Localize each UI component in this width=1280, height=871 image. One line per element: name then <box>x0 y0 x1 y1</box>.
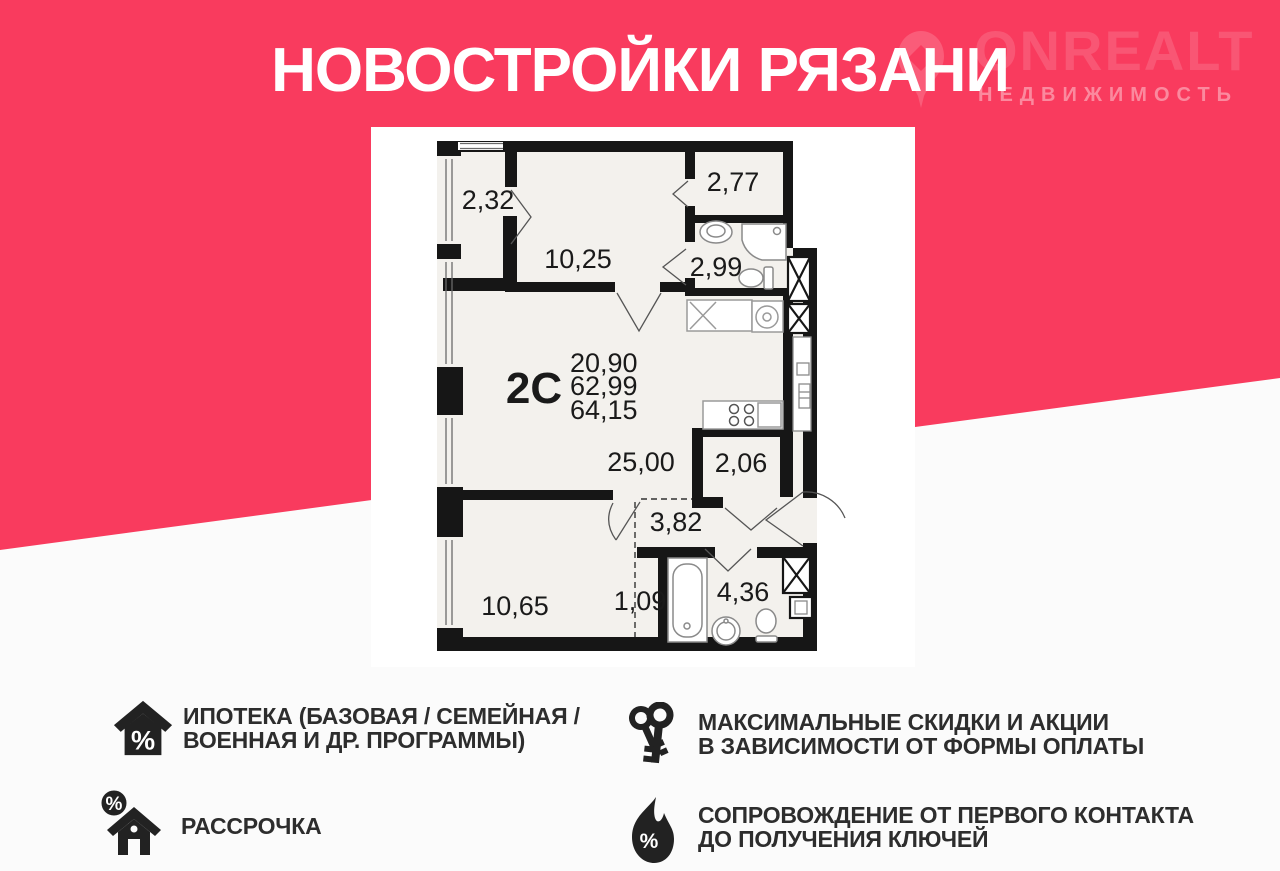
page-title: НОВОСТРОЙКИ РЯЗАНИ <box>0 40 1280 102</box>
svg-text:%: % <box>106 794 123 815</box>
house-installment-icon: % <box>97 787 171 857</box>
feature-installment: РАССРОЧКА <box>181 814 322 838</box>
flyer: ONREALT НЕДВИЖИМОСТЬ НОВОСТРОЙКИ РЯЗАНИ <box>0 0 1280 871</box>
room-label-hallway: 3,82 <box>650 507 703 537</box>
room-label-loggia-right: 2,77 <box>707 167 760 197</box>
room-label-loggia-left: 2,32 <box>462 185 515 215</box>
room-label-bathroom-bottom: 4,36 <box>717 577 770 607</box>
feature-discounts-line2: В ЗАВИСИМОСТИ ОТ ФОРМЫ ОПЛАТЫ <box>698 734 1144 758</box>
room-label-kitchen-living: 25,00 <box>607 447 675 477</box>
floorplan: 2,32 10,25 2,77 2,99 25,00 2,06 3,82 10,… <box>371 127 915 667</box>
unit-type-label: 2С <box>506 364 562 413</box>
feature-discounts-line1: МАКСИМАЛЬНЫЕ СКИДКИ И АКЦИИ <box>698 710 1144 734</box>
room-label-room-top: 10,25 <box>544 244 612 274</box>
room-label-wardrobe: 2,06 <box>715 448 768 478</box>
svg-text:%: % <box>640 830 659 853</box>
keys-icon <box>627 702 679 780</box>
feature-mortgage: ИПОТЕКА (БАЗОВАЯ / СЕМЕЙНАЯ / ВОЕННАЯ И … <box>183 704 580 752</box>
svg-text:%: % <box>131 724 155 755</box>
entry-niche <box>793 337 811 431</box>
feature-support-line2: ДО ПОЛУЧЕНИЯ КЛЮЧЕЙ <box>698 827 1194 851</box>
room-label-closet: 1,09 <box>614 586 667 616</box>
feature-installment-line1: РАССРОЧКА <box>181 814 322 838</box>
feature-mortgage-line1: ИПОТЕКА (БАЗОВАЯ / СЕМЕЙНАЯ / <box>183 704 580 728</box>
room-label-bathroom-top: 2,99 <box>690 252 743 282</box>
feature-mortgage-line2: ВОЕННАЯ И ДР. ПРОГРАММЫ) <box>183 728 580 752</box>
house-percent-icon: % <box>112 699 174 757</box>
room-label-bedroom: 10,65 <box>481 591 549 621</box>
metric-total-area: 64,15 <box>570 395 638 425</box>
floorplan-panel: 2,32 10,25 2,77 2,99 25,00 2,06 3,82 10,… <box>371 127 915 667</box>
flame-percent-icon: % <box>626 795 680 867</box>
feature-discounts: МАКСИМАЛЬНЫЕ СКИДКИ И АКЦИИ В ЗАВИСИМОСТ… <box>698 710 1144 758</box>
feature-support: СОПРОВОЖДЕНИЕ ОТ ПЕРВОГО КОНТАКТА ДО ПОЛ… <box>698 803 1194 851</box>
feature-support-line1: СОПРОВОЖДЕНИЕ ОТ ПЕРВОГО КОНТАКТА <box>698 803 1194 827</box>
